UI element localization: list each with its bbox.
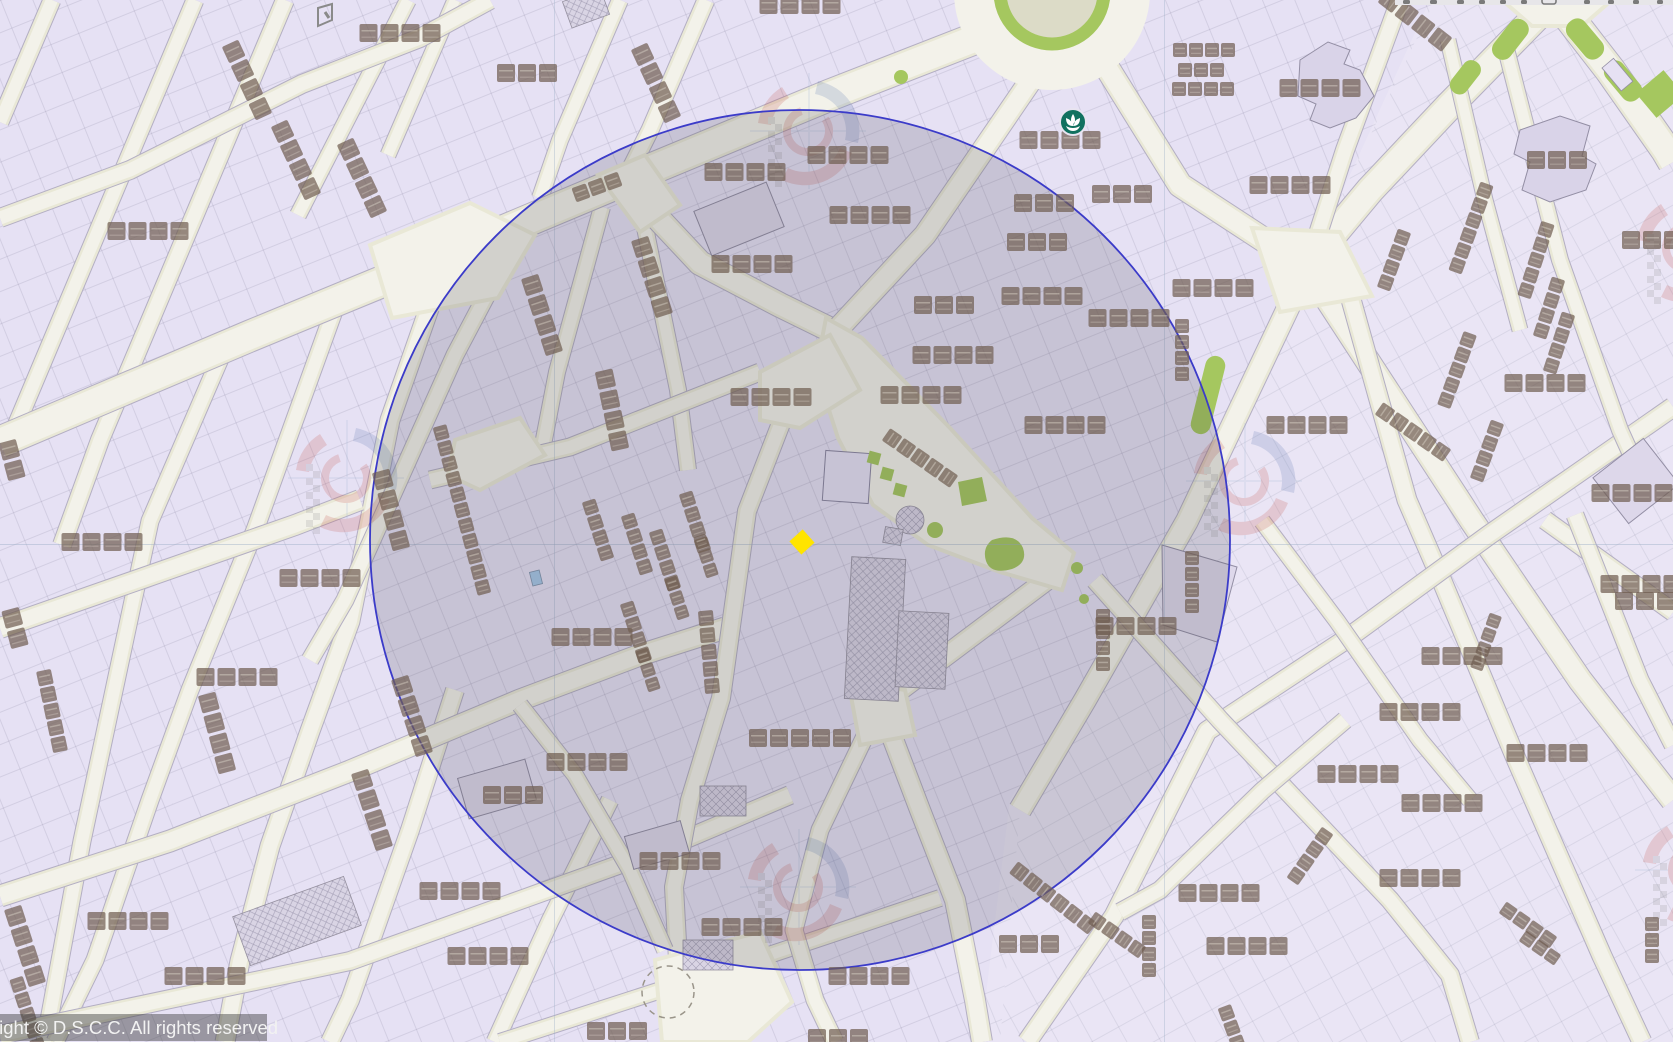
svg-text:right © D.S.C.C. All rights re: right © D.S.C.C. All rights reserved	[0, 1017, 278, 1038]
